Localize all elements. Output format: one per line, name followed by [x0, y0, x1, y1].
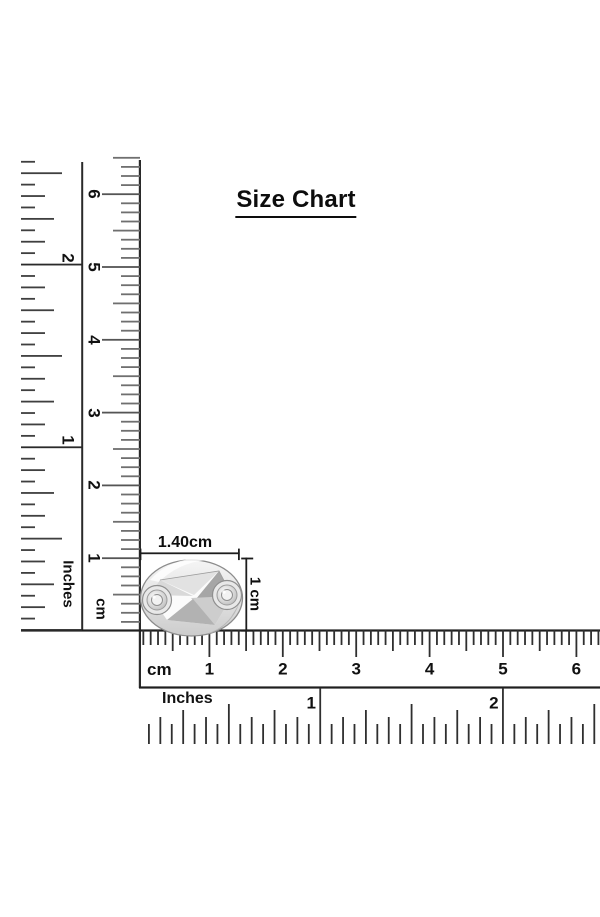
tick — [239, 724, 241, 744]
tick — [21, 184, 35, 186]
vertical-cm-number-2: 2 — [86, 481, 103, 490]
horizontal-inches-number-2: 2 — [489, 695, 498, 712]
tick — [121, 248, 140, 250]
tick — [228, 704, 230, 744]
tick — [422, 724, 424, 744]
tick — [102, 485, 140, 487]
tick — [142, 630, 144, 645]
tick — [262, 724, 264, 744]
tick — [21, 229, 35, 231]
tick — [121, 312, 140, 314]
tick — [436, 630, 438, 645]
tick — [121, 175, 140, 177]
tick — [121, 321, 140, 323]
width-dimension-right-cap — [238, 549, 240, 561]
vertical-inches-ruler-line — [81, 162, 83, 631]
tick — [102, 412, 140, 414]
tick — [282, 630, 284, 657]
tick — [21, 446, 82, 448]
vertical-cm-ruler-label: cm — [94, 598, 109, 620]
tick — [21, 595, 35, 597]
tick — [411, 704, 413, 744]
tick — [113, 594, 140, 596]
tick — [113, 230, 140, 232]
tick — [21, 161, 35, 163]
tick — [296, 717, 298, 744]
tick — [21, 241, 45, 243]
tick — [21, 629, 82, 631]
height-dimension-top-cap — [241, 558, 253, 560]
tick — [304, 630, 306, 645]
tick — [355, 630, 357, 657]
tick — [414, 630, 416, 645]
tick — [121, 239, 140, 241]
horizontal-inches-ruler-line — [139, 686, 600, 688]
width-dimension-left-cap — [140, 549, 142, 561]
tick — [421, 630, 423, 645]
tick — [274, 710, 276, 744]
tick — [21, 332, 45, 334]
tick — [582, 724, 584, 744]
tick — [388, 717, 390, 744]
left-rivet — [143, 586, 172, 615]
tick — [21, 218, 54, 220]
tick — [333, 630, 335, 645]
tick — [21, 252, 35, 254]
tick — [354, 724, 356, 744]
vertical-cm-number-6: 6 — [86, 189, 103, 198]
tick — [182, 710, 184, 744]
tick — [251, 717, 253, 744]
tick — [429, 630, 431, 657]
horizontal-inches-number-1: 1 — [306, 695, 315, 712]
tick — [245, 630, 247, 651]
vertical-cm-number-1: 1 — [86, 553, 103, 562]
tick — [342, 717, 344, 744]
tick — [285, 724, 287, 744]
tick — [341, 630, 343, 645]
tick — [159, 717, 161, 744]
tick — [21, 469, 45, 471]
tick — [568, 630, 570, 645]
tick — [376, 724, 378, 744]
tick — [121, 576, 140, 578]
tick — [205, 717, 207, 744]
tick — [21, 561, 45, 563]
tick — [370, 630, 372, 645]
right-rivet — [213, 581, 242, 610]
vertical-inches-number-1: 1 — [60, 436, 77, 445]
tick — [121, 293, 140, 295]
tick — [171, 724, 173, 744]
tick — [21, 309, 54, 311]
tick — [21, 366, 35, 368]
tick — [157, 630, 159, 645]
tick — [113, 521, 140, 523]
tick — [21, 572, 35, 574]
tick — [150, 630, 152, 645]
tick — [468, 724, 470, 744]
tick — [121, 439, 140, 441]
tick — [121, 403, 140, 405]
tick — [121, 221, 140, 223]
tick — [21, 549, 35, 551]
tick — [102, 193, 140, 195]
tick — [121, 566, 140, 568]
size-chart-image: Size Chart Inches cm cm Inches 1.40cm 1 … — [0, 0, 600, 917]
vertical-cm-number-5: 5 — [86, 262, 103, 271]
tick — [407, 630, 409, 645]
horizontal-cm-number-4: 4 — [425, 661, 434, 678]
tick — [561, 630, 563, 645]
tick — [102, 557, 140, 559]
tick — [121, 257, 140, 259]
tick — [583, 630, 585, 645]
tick — [546, 630, 548, 645]
tick — [434, 717, 436, 744]
tick — [525, 717, 527, 744]
tick — [377, 630, 379, 645]
horizontal-cm-ruler-label: cm — [147, 661, 172, 678]
tick — [21, 583, 54, 585]
tick — [297, 630, 299, 645]
horizontal-cm-ruler-line — [21, 629, 600, 631]
tick — [260, 630, 262, 645]
tick — [121, 466, 140, 468]
tick — [121, 212, 140, 214]
vertical-inches-ruler-label: Inches — [61, 560, 76, 608]
tick — [487, 630, 489, 645]
tick — [553, 630, 555, 645]
tick — [524, 630, 526, 645]
tick — [21, 287, 45, 289]
tick — [513, 724, 515, 744]
tick — [121, 457, 140, 459]
tick — [121, 330, 140, 332]
tick — [451, 630, 453, 645]
product-image — [141, 558, 243, 636]
tick — [21, 503, 35, 505]
tick — [148, 724, 150, 744]
tick — [113, 303, 140, 305]
vertical-cm-number-3: 3 — [86, 408, 103, 417]
tick — [590, 630, 592, 645]
tick — [21, 606, 45, 608]
tick — [121, 621, 140, 623]
tick — [21, 424, 45, 426]
tick — [121, 202, 140, 204]
tick — [517, 630, 519, 645]
tick — [576, 630, 578, 657]
tick — [21, 321, 35, 323]
ruler-artwork — [0, 0, 600, 917]
tick — [121, 421, 140, 423]
tick — [194, 724, 196, 744]
tick — [121, 348, 140, 350]
tick — [21, 355, 62, 357]
tick — [539, 630, 541, 651]
tick — [392, 630, 394, 651]
tick — [502, 688, 504, 744]
width-dimension-line — [140, 552, 240, 554]
tick — [102, 339, 140, 341]
tick — [113, 448, 140, 450]
tick — [21, 389, 35, 391]
tick — [21, 435, 35, 437]
tick — [217, 724, 219, 744]
tick — [319, 630, 321, 651]
tick — [331, 724, 333, 744]
tick — [571, 717, 573, 744]
tick — [121, 585, 140, 587]
horizontal-cm-number-2: 2 — [278, 661, 287, 678]
tick — [509, 630, 511, 645]
tick — [21, 275, 35, 277]
tick — [21, 172, 62, 174]
horizontal-inches-ruler-label: Inches — [162, 691, 213, 707]
tick — [311, 630, 313, 645]
tick — [308, 724, 310, 744]
tick — [121, 539, 140, 541]
tick — [593, 704, 595, 744]
tick — [365, 710, 367, 744]
tick — [223, 630, 225, 645]
tick — [267, 630, 269, 645]
horizontal-cm-number-5: 5 — [498, 661, 507, 678]
tick — [21, 481, 35, 483]
tick — [238, 630, 240, 645]
tick — [21, 207, 35, 209]
tick — [121, 357, 140, 359]
tick — [21, 412, 35, 414]
tick — [21, 538, 62, 540]
tick — [443, 630, 445, 645]
tick — [326, 630, 328, 645]
horizontal-cm-number-1: 1 — [205, 661, 214, 678]
tick — [113, 157, 140, 159]
height-dimension-bottom-cap — [241, 630, 253, 632]
tick — [289, 630, 291, 645]
horizontal-cm-number-6: 6 — [572, 661, 581, 678]
tick — [21, 401, 54, 403]
tick — [121, 512, 140, 514]
tick — [465, 630, 467, 651]
tick — [21, 492, 54, 494]
tick — [548, 710, 550, 744]
tick — [121, 494, 140, 496]
tick — [21, 298, 35, 300]
tick — [559, 724, 561, 744]
tick — [399, 724, 401, 744]
tick — [399, 630, 401, 645]
tick — [102, 266, 140, 268]
horizontal-cm-number-3: 3 — [351, 661, 360, 678]
tick — [121, 394, 140, 396]
tick — [502, 630, 504, 657]
tick — [121, 366, 140, 368]
tick — [231, 630, 233, 645]
tick — [216, 630, 218, 645]
tick — [113, 375, 140, 377]
tick — [121, 603, 140, 605]
tick — [21, 458, 35, 460]
tick — [121, 384, 140, 386]
vertical-inches-number-2: 2 — [60, 253, 77, 262]
tick — [495, 630, 497, 645]
tick — [456, 710, 458, 744]
tick — [164, 630, 166, 645]
vertical-cm-number-4: 4 — [86, 335, 103, 344]
tick — [121, 184, 140, 186]
tick — [491, 724, 493, 744]
tick — [319, 688, 321, 744]
height-dimension-label: 1 cm — [248, 577, 263, 611]
tick — [479, 717, 481, 744]
tick — [121, 530, 140, 532]
width-dimension-label: 1.40cm — [158, 535, 212, 551]
tick — [253, 630, 255, 645]
tick — [536, 724, 538, 744]
tick — [121, 612, 140, 614]
tick — [21, 378, 45, 380]
tick — [121, 166, 140, 168]
tick — [121, 503, 140, 505]
tick — [473, 630, 475, 645]
tick — [121, 548, 140, 550]
tick — [531, 630, 533, 645]
tick — [275, 630, 277, 645]
tick — [121, 430, 140, 432]
tick — [458, 630, 460, 645]
page-title: Size Chart — [235, 186, 356, 218]
ruler-ticks — [21, 157, 599, 744]
tick — [480, 630, 482, 645]
tick — [445, 724, 447, 744]
tick — [121, 275, 140, 277]
tick — [121, 284, 140, 286]
tick — [21, 344, 35, 346]
tick — [21, 618, 35, 620]
tick — [598, 630, 600, 645]
tick — [385, 630, 387, 645]
tick — [121, 475, 140, 477]
tick — [21, 515, 45, 517]
tick — [21, 264, 82, 266]
tick — [363, 630, 365, 645]
tick — [21, 195, 45, 197]
tick — [21, 526, 35, 528]
tick — [348, 630, 350, 645]
